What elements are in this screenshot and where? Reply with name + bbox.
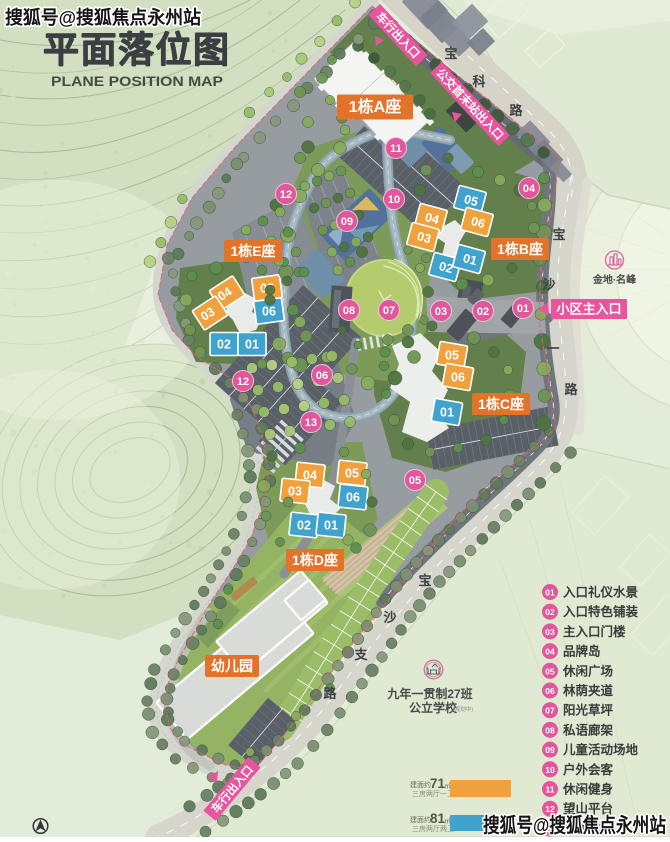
- svg-text:03: 03: [545, 627, 555, 637]
- svg-text:1栋A座: 1栋A座: [349, 97, 401, 116]
- svg-text:㎡: ㎡: [444, 782, 451, 790]
- svg-text:公立学校: 公立学校: [409, 700, 458, 715]
- svg-text:阳光草坪: 阳光草坪: [563, 703, 614, 718]
- svg-text:06: 06: [316, 370, 328, 382]
- svg-text:1栋E座: 1栋E座: [230, 243, 275, 259]
- svg-text:06: 06: [346, 491, 360, 505]
- svg-text:13: 13: [305, 417, 317, 429]
- svg-text:建面约: 建面约: [410, 815, 431, 824]
- svg-text:05: 05: [345, 467, 359, 481]
- svg-text:户外会客: 户外会客: [563, 762, 614, 777]
- svg-text:九年一贯制27班: 九年一贯制27班: [386, 686, 472, 701]
- svg-text:宝: 宝: [444, 46, 457, 61]
- svg-text:02: 02: [297, 519, 311, 533]
- svg-text:三房两厅两卫: 三房两厅两卫: [412, 824, 454, 833]
- svg-text:平面落位图: 平面落位图: [43, 29, 231, 70]
- svg-text:儿童活动场地: 儿童活动场地: [562, 742, 639, 757]
- svg-text:07: 07: [383, 305, 395, 317]
- svg-text:路: 路: [323, 686, 337, 701]
- svg-text:06: 06: [262, 305, 276, 319]
- svg-text:01: 01: [545, 588, 555, 598]
- svg-text:08: 08: [343, 305, 355, 317]
- svg-text:03: 03: [435, 306, 447, 318]
- svg-text:09: 09: [545, 745, 555, 755]
- svg-text:10: 10: [388, 194, 400, 206]
- svg-text:(规划中): (规划中): [453, 705, 473, 713]
- svg-text:三房两厅一卫: 三房两厅一卫: [412, 789, 454, 798]
- svg-text:小区主入口: 小区主入口: [556, 302, 621, 317]
- svg-text:11: 11: [390, 143, 402, 155]
- svg-text:品牌岛: 品牌岛: [563, 644, 601, 659]
- svg-text:沙: 沙: [383, 610, 396, 625]
- svg-text:沙: 沙: [542, 277, 555, 292]
- svg-text:休闲健身: 休闲健身: [562, 782, 614, 797]
- svg-text:金地·名峰: 金地·名峰: [592, 273, 637, 286]
- svg-text:路: 路: [509, 103, 523, 118]
- svg-text:路: 路: [564, 382, 578, 397]
- svg-text:搜狐号@搜狐焦点永州站: 搜狐号@搜狐焦点永州站: [483, 813, 666, 837]
- svg-text:主入口门楼: 主入口门楼: [563, 624, 626, 639]
- svg-text:02: 02: [477, 306, 489, 318]
- svg-text:宝: 宝: [418, 573, 431, 588]
- svg-text:1栋C座: 1栋C座: [478, 396, 524, 412]
- svg-text:搜狐号@搜狐焦点永州站: 搜狐号@搜狐焦点永州站: [5, 7, 201, 28]
- svg-text:05: 05: [409, 475, 421, 487]
- svg-text:私语廊架: 私语廊架: [562, 722, 614, 737]
- svg-text:08: 08: [545, 725, 555, 735]
- svg-text:04: 04: [545, 647, 555, 657]
- svg-text:PLANE POSITION MAP: PLANE POSITION MAP: [51, 74, 223, 89]
- svg-text:01: 01: [324, 519, 338, 533]
- svg-text:07: 07: [545, 706, 555, 716]
- svg-text:01: 01: [245, 338, 259, 352]
- svg-text:11: 11: [546, 785, 555, 795]
- svg-text:休闲广场: 休闲广场: [562, 663, 613, 678]
- svg-text:㎡: ㎡: [444, 817, 451, 825]
- svg-text:05: 05: [545, 666, 555, 676]
- svg-text:12: 12: [280, 189, 292, 201]
- svg-text:幼儿园: 幼儿园: [211, 658, 253, 674]
- svg-text:一: 一: [546, 341, 559, 356]
- svg-text:01: 01: [440, 406, 454, 420]
- svg-text:望山平台: 望山平台: [563, 801, 613, 816]
- svg-text:03: 03: [288, 485, 302, 499]
- svg-text:02: 02: [545, 607, 555, 617]
- svg-text:支: 支: [353, 647, 368, 662]
- svg-text:04: 04: [523, 183, 536, 195]
- svg-text:12: 12: [545, 804, 555, 814]
- svg-text:01: 01: [517, 303, 529, 315]
- svg-text:09: 09: [341, 216, 353, 228]
- svg-text:05: 05: [445, 349, 459, 363]
- svg-text:1栋B座: 1栋B座: [497, 241, 543, 257]
- svg-text:06: 06: [451, 371, 465, 385]
- svg-text:科: 科: [472, 74, 485, 89]
- svg-text:1栋D座: 1栋D座: [292, 552, 338, 568]
- svg-text:建面约: 建面约: [410, 780, 431, 789]
- svg-text:林荫夹道: 林荫夹道: [563, 683, 614, 698]
- svg-text:06: 06: [545, 686, 555, 696]
- svg-text:宝: 宝: [552, 227, 565, 242]
- svg-text:入口礼仪水景: 入口礼仪水景: [563, 585, 639, 600]
- svg-text:入口特色铺装: 入口特色铺装: [563, 604, 639, 619]
- svg-text:12: 12: [237, 376, 249, 388]
- svg-text:10: 10: [545, 765, 555, 775]
- svg-text:02: 02: [217, 338, 231, 352]
